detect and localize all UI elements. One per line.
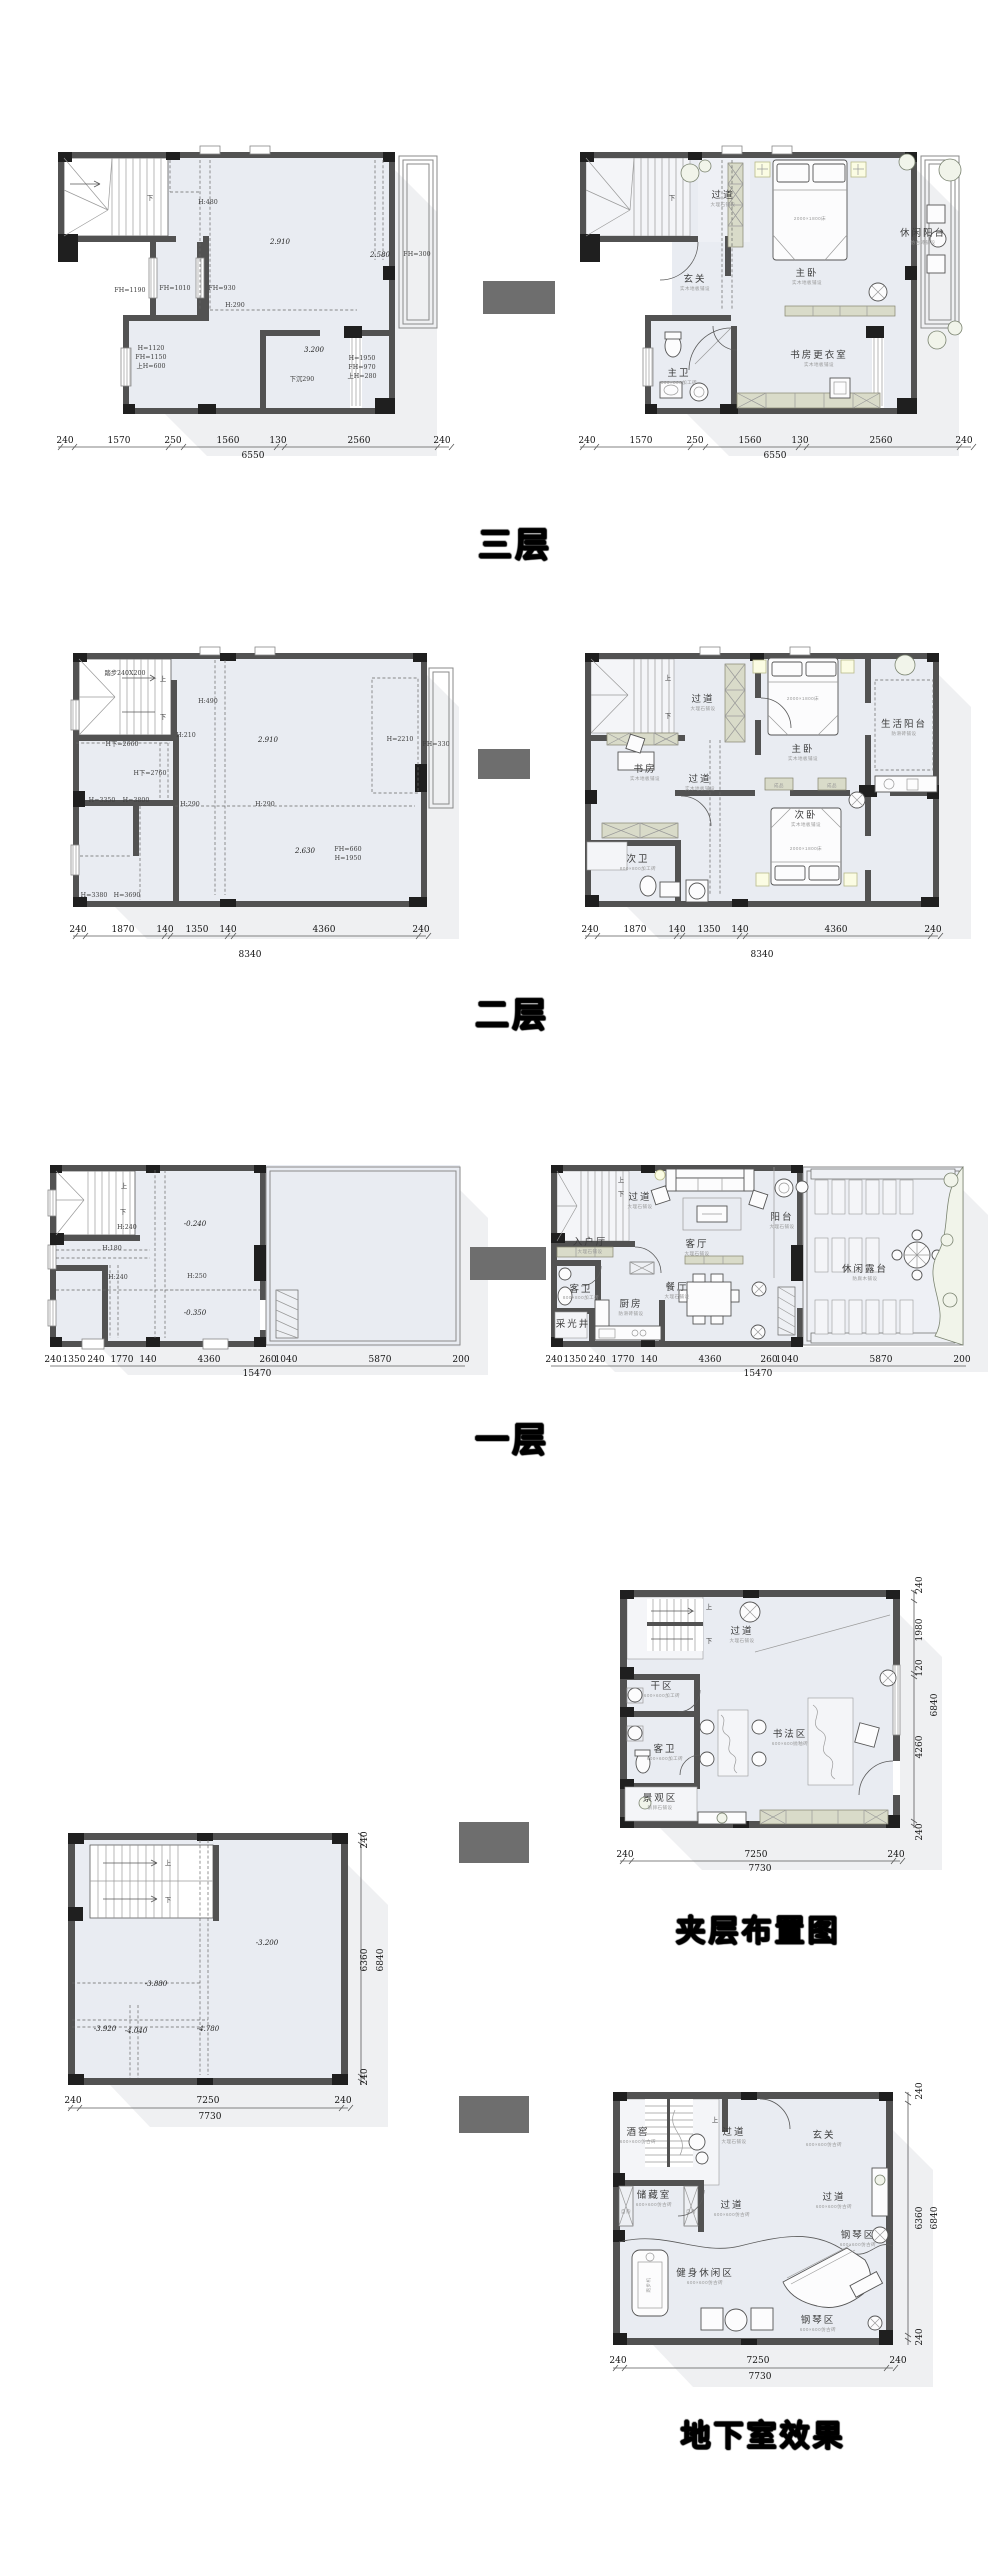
plan-2f-furnished: 过道大理石铺设上下书房实木地板铺设过道实木地板铺设主卧实木地板铺设2000×18… bbox=[560, 640, 985, 970]
plan-annotation: 1870 bbox=[112, 925, 135, 935]
plan-1f-furnished: 过道大理石铺设上下入户厅大理石铺设客厅大理石铺设阳台大理石铺设客卫800×800… bbox=[535, 1150, 1000, 1400]
plan-annotation: 240 bbox=[578, 436, 595, 446]
plan-basement-original: 上下-3.200-3.880-3.920-4.040-4.78024072502… bbox=[45, 1815, 445, 2160]
plan-annotation: 1570 bbox=[108, 436, 131, 446]
plan-mezzanine-furnished: 过道大理石铺设上下干区600×600加工砖客卫600×600加工砖景观区鹅卵石铺… bbox=[605, 1555, 1000, 1950]
walls-group bbox=[48, 1165, 460, 1349]
plan-basement-furnished: 酒窖600×600仿古砖过道大理石铺设上玄关600×600仿古砖储藏室600×6… bbox=[605, 2080, 1000, 2440]
plan-annotation: 250 bbox=[686, 436, 703, 446]
plan-annotation: 240 bbox=[87, 1355, 104, 1365]
walls-group bbox=[68, 1833, 348, 2085]
connector-block bbox=[470, 1247, 546, 1280]
plan-annotation: 240 bbox=[56, 436, 73, 446]
plan-annotation: 240 bbox=[616, 1850, 633, 1860]
plan-annotation: 8340 bbox=[239, 950, 262, 960]
connector-block bbox=[459, 2096, 529, 2133]
title-floor3: 三层 bbox=[478, 518, 552, 567]
plan-annotation: 240 bbox=[64, 2096, 81, 2106]
walls-group bbox=[71, 647, 453, 907]
plan-annotation: 240 bbox=[609, 2356, 626, 2366]
plan-annotation: 240 bbox=[915, 1576, 925, 1593]
title-floor2: 二层 bbox=[475, 988, 549, 1037]
plan-3f-original: H:480下2.9102.580FH=300FH=1190FH=1010FH=9… bbox=[50, 140, 460, 470]
plan-annotation: 240 bbox=[44, 1355, 61, 1365]
plan-annotation: 240 bbox=[545, 1355, 562, 1365]
plan-annotation: 250 bbox=[164, 436, 181, 446]
title-basement: 地下室效果 bbox=[681, 2411, 846, 2455]
plan-3f-furnished: 过道大理石铺设下玄关实木地板铺设主卧实木地板铺设2000×1800床休闲阳台仿古… bbox=[555, 140, 1000, 470]
connector-block bbox=[483, 281, 555, 314]
title-floor1: 一层 bbox=[475, 1413, 549, 1462]
stair-group bbox=[647, 1599, 703, 1651]
plan-annotation: 1350 bbox=[63, 1355, 86, 1365]
plan-annotation: 240 bbox=[360, 1831, 370, 1848]
plan-annotation: 1350 bbox=[564, 1355, 587, 1365]
plan-annotation: 1870 bbox=[624, 925, 647, 935]
plan-annotation: 8340 bbox=[751, 950, 774, 960]
plan-annotation: 240 bbox=[69, 925, 86, 935]
connector-block bbox=[459, 1822, 529, 1863]
plan-annotation: 240 bbox=[581, 925, 598, 935]
walls-group bbox=[580, 146, 959, 420]
title-mezzanine: 夹层布置图 bbox=[676, 1906, 841, 1950]
connector-block bbox=[478, 749, 530, 779]
plan-2f-original: 踏步240X200上下H:490H:210H下=2660H下=2760H=335… bbox=[60, 640, 460, 970]
plan-1f-original: 上下H:240H:180H:240H:250-0.240-0.350240135… bbox=[40, 1150, 510, 1400]
floor-plan-sheet: H:480下2.9102.580FH=300FH=1190FH=1010FH=9… bbox=[0, 0, 1000, 2572]
walls-group bbox=[58, 146, 437, 420]
plan-annotation: 240 bbox=[915, 2082, 925, 2099]
plan-annotation: 1570 bbox=[630, 436, 653, 446]
